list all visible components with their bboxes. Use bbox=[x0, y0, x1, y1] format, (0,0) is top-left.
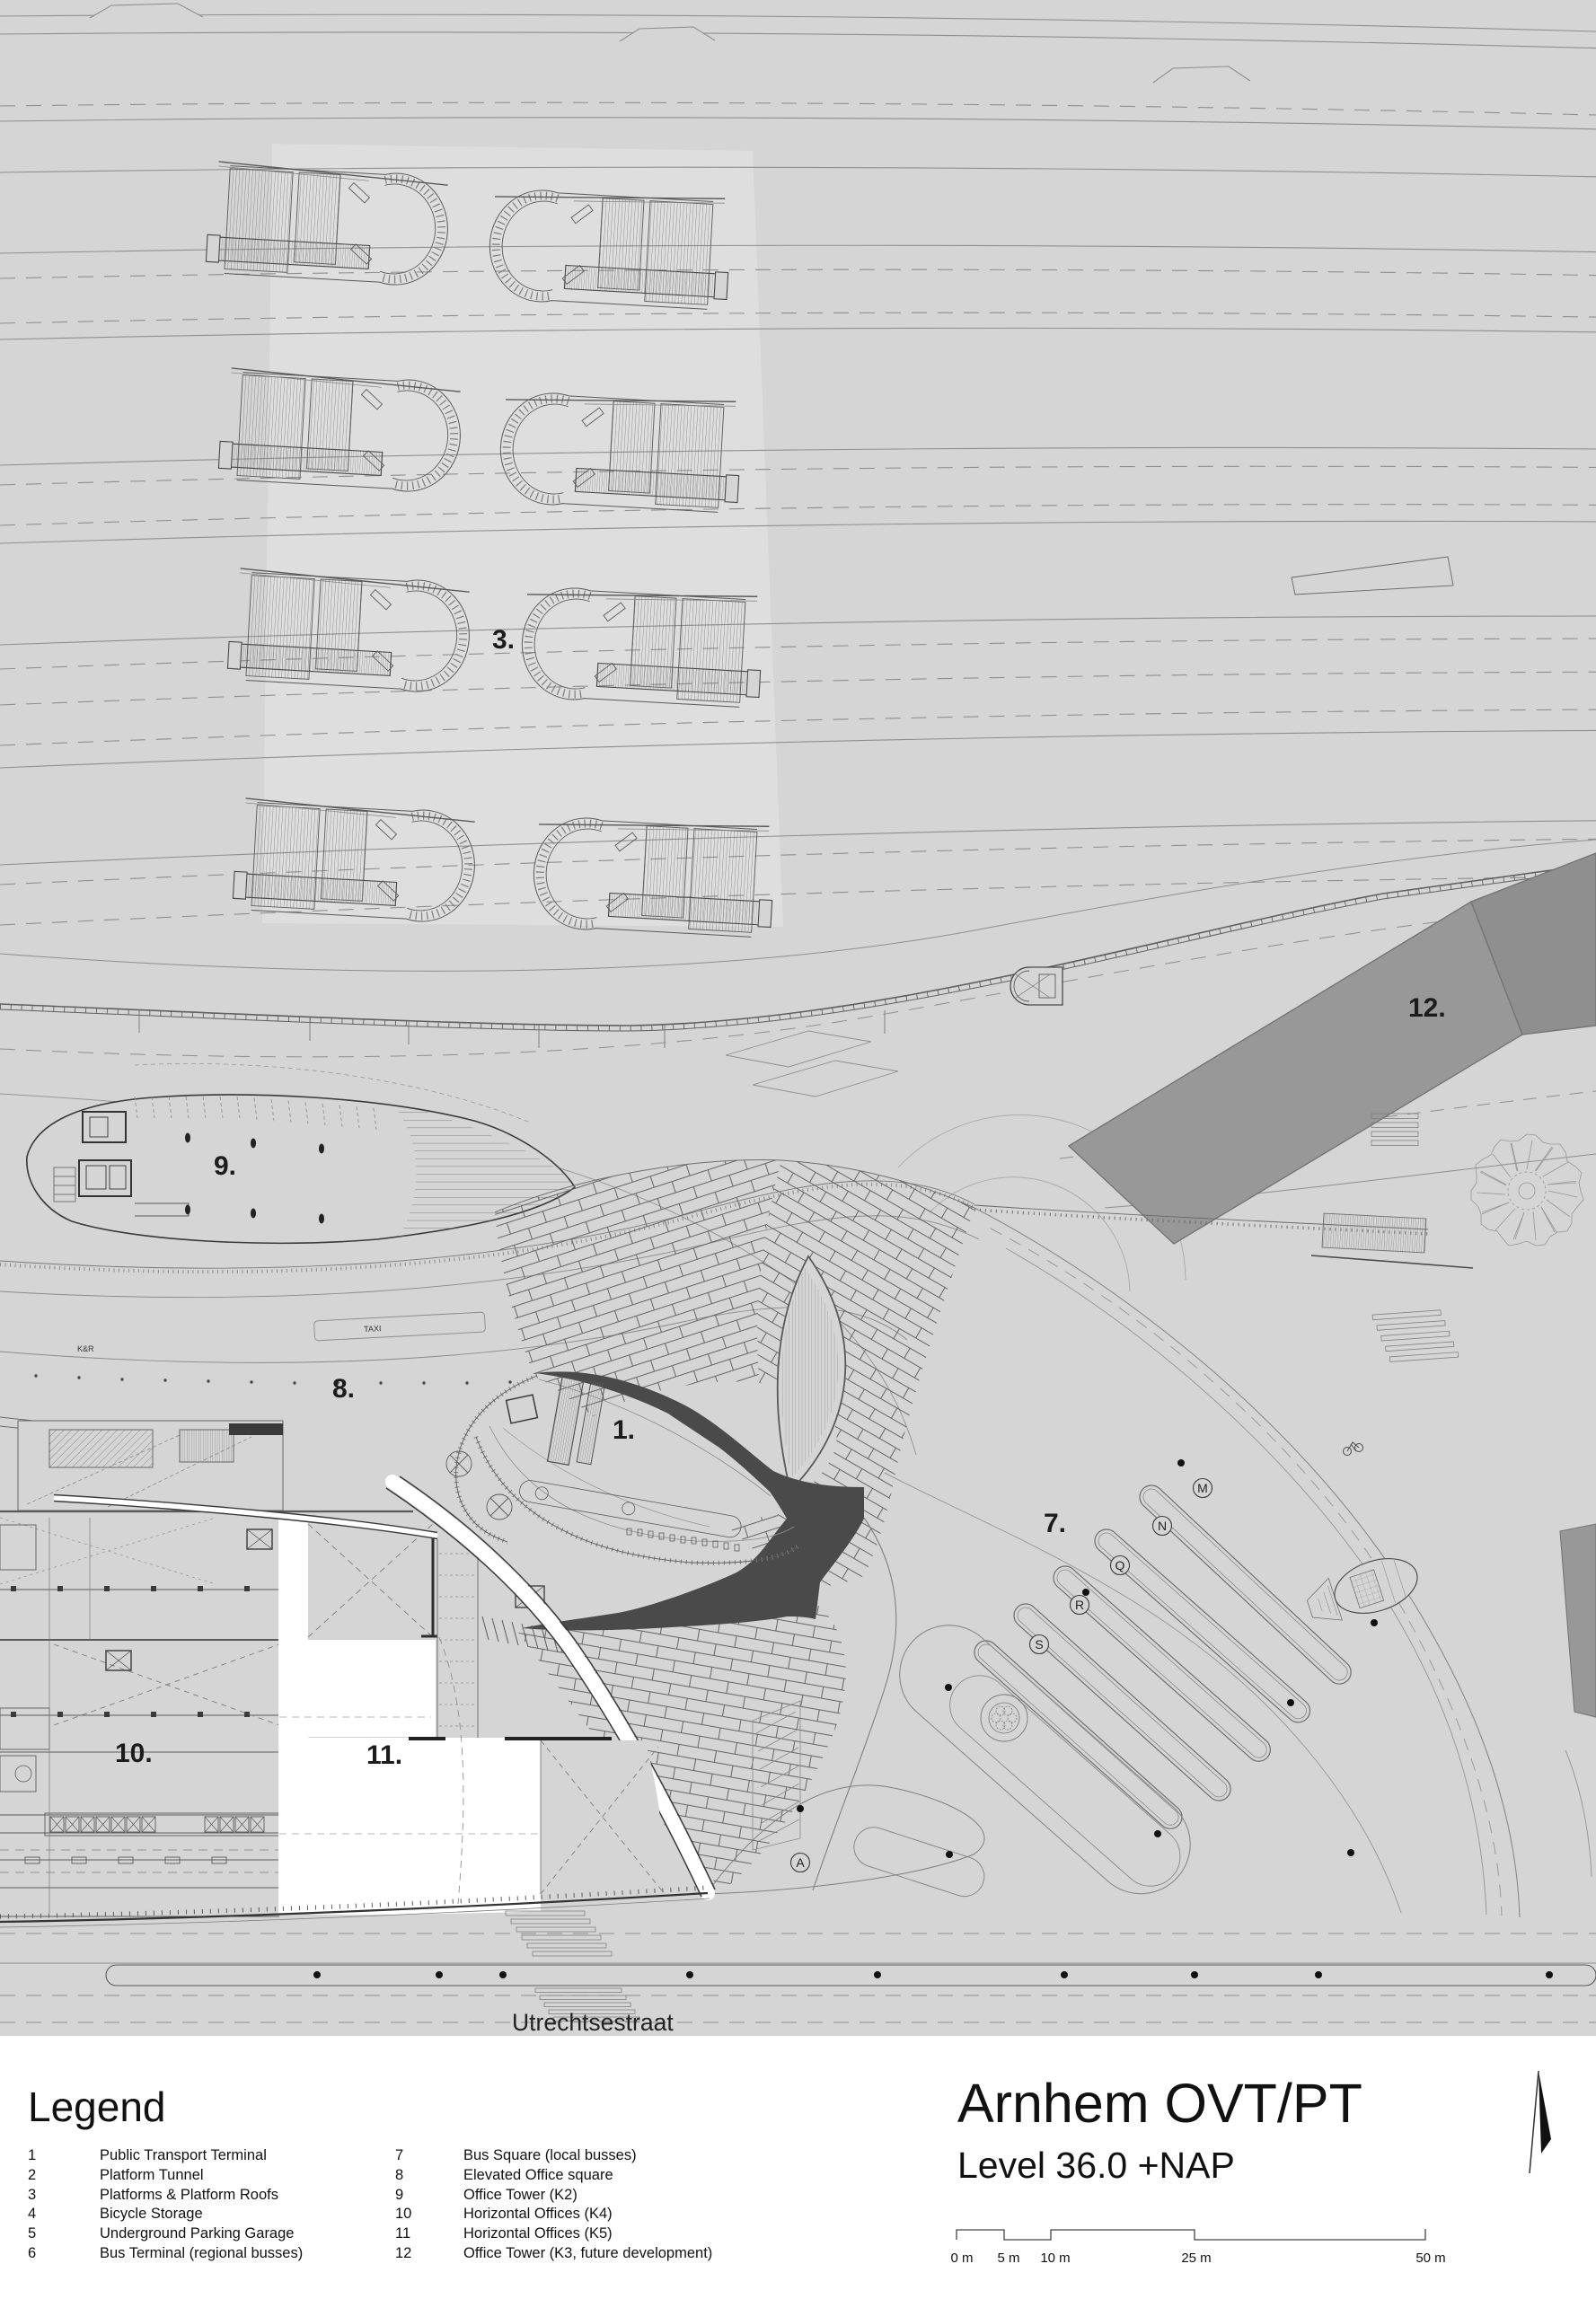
svg-text:Legend: Legend bbox=[28, 2083, 166, 2130]
svg-text:11.: 11. bbox=[366, 1740, 402, 1770]
svg-text:10.: 10. bbox=[115, 1739, 153, 1768]
svg-text:7: 7 bbox=[395, 2147, 403, 2163]
svg-text:R: R bbox=[1075, 1598, 1084, 1612]
svg-text:3.: 3. bbox=[492, 625, 515, 655]
svg-text:Office Tower (K3, future devel: Office Tower (K3, future development) bbox=[463, 2245, 712, 2261]
svg-text:Office Tower (K2): Office Tower (K2) bbox=[463, 2187, 578, 2203]
svg-text:Utrechtsestraat: Utrechtsestraat bbox=[512, 2009, 674, 2036]
svg-text:6: 6 bbox=[28, 2245, 36, 2261]
svg-text:M: M bbox=[1197, 1481, 1208, 1495]
svg-text:12.: 12. bbox=[1408, 993, 1446, 1023]
svg-text:11: 11 bbox=[395, 2225, 410, 2242]
svg-text:50 m: 50 m bbox=[1415, 2251, 1445, 2266]
svg-text:Platform Tunnel: Platform Tunnel bbox=[100, 2167, 204, 2183]
svg-text:0 m: 0 m bbox=[950, 2251, 973, 2266]
svg-text:S: S bbox=[1035, 1637, 1043, 1652]
svg-text:5: 5 bbox=[28, 2225, 36, 2242]
svg-text:5 m: 5 m bbox=[997, 2251, 1019, 2266]
svg-text:8.: 8. bbox=[332, 1374, 355, 1404]
svg-text:Horizontal Offices (K5): Horizontal Offices (K5) bbox=[463, 2225, 613, 2242]
svg-text:1.: 1. bbox=[613, 1415, 635, 1445]
svg-text:Bus Terminal (regional busses): Bus Terminal (regional busses) bbox=[100, 2245, 303, 2261]
svg-text:Q: Q bbox=[1115, 1558, 1125, 1572]
svg-text:4: 4 bbox=[28, 2206, 36, 2222]
svg-text:N: N bbox=[1158, 1519, 1167, 1533]
svg-text:1: 1 bbox=[28, 2147, 36, 2163]
svg-text:Horizontal Offices (K4): Horizontal Offices (K4) bbox=[463, 2206, 613, 2222]
svg-text:Elevated Office square: Elevated Office square bbox=[463, 2167, 613, 2183]
svg-text:8: 8 bbox=[395, 2167, 403, 2183]
svg-text:K&R: K&R bbox=[77, 1344, 94, 1353]
svg-text:A: A bbox=[796, 1855, 805, 1870]
svg-text:Underground Parking Garage: Underground Parking Garage bbox=[100, 2225, 294, 2242]
svg-text:Platforms & Platform Roofs: Platforms & Platform Roofs bbox=[100, 2187, 278, 2203]
svg-text:9.: 9. bbox=[214, 1151, 236, 1181]
svg-text:3: 3 bbox=[28, 2187, 36, 2203]
svg-text:Level 36.0 +NAP: Level 36.0 +NAP bbox=[957, 2145, 1235, 2186]
svg-text:7.: 7. bbox=[1044, 1509, 1066, 1538]
svg-text:10: 10 bbox=[395, 2206, 411, 2222]
svg-text:Bus Square (local busses): Bus Square (local busses) bbox=[463, 2147, 637, 2163]
svg-text:12: 12 bbox=[395, 2245, 411, 2261]
svg-text:Arnhem OVT/PT: Arnhem OVT/PT bbox=[957, 2073, 1362, 2134]
svg-text:10 m: 10 m bbox=[1040, 2251, 1070, 2266]
svg-text:2: 2 bbox=[28, 2167, 36, 2183]
svg-text:25 m: 25 m bbox=[1181, 2251, 1211, 2266]
svg-text:TAXI: TAXI bbox=[364, 1324, 382, 1334]
svg-text:Public Transport Terminal: Public Transport Terminal bbox=[100, 2147, 267, 2163]
svg-text:Bicycle Storage: Bicycle Storage bbox=[100, 2206, 203, 2222]
svg-text:9: 9 bbox=[395, 2187, 403, 2203]
